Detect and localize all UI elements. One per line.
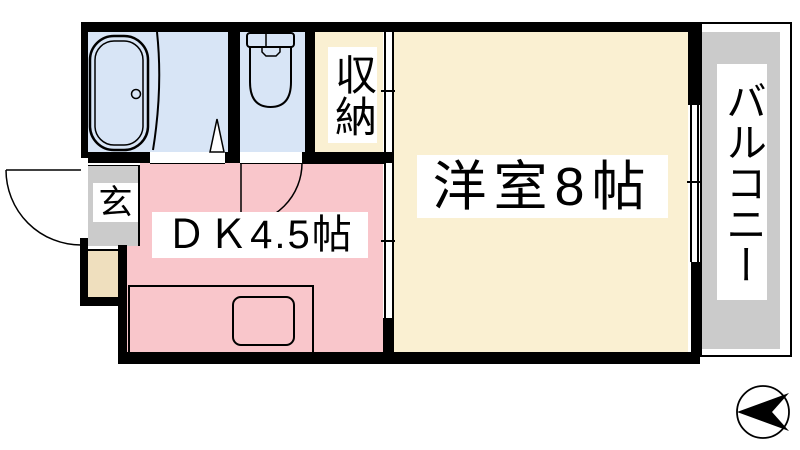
room-divider-tick (381, 240, 395, 242)
wall-between-doors (225, 152, 240, 163)
room-label-entrance: 玄 (93, 183, 138, 222)
wall-west-right-lower (691, 262, 700, 364)
wall-top (81, 22, 700, 32)
wall-under-bathroom (88, 152, 150, 163)
bathroom-door-threshold (150, 152, 225, 164)
toilet-room-floor (240, 32, 305, 152)
room-label-dk: ＤＫ4.5帖 (152, 212, 368, 258)
wall-left-lower (80, 238, 88, 306)
wall-under-closet (302, 152, 394, 164)
entrance-door-swing (6, 170, 81, 245)
wall-toilet-closet (305, 32, 315, 152)
room-label-western-room: 洋室8帖 (417, 155, 668, 218)
floor-plan: ＤＫ4.5帖 洋室8帖 収納 玄 バルコニー (0, 0, 800, 450)
wall-alcove-right (118, 245, 127, 352)
room-label-closet: 収納 (328, 47, 377, 143)
closet-door-tick (381, 90, 395, 92)
wall-bath-toilet (228, 32, 240, 152)
entrance-alcove (88, 249, 118, 299)
room-label-balcony: バルコニー (717, 64, 767, 300)
bathroom-floor (88, 32, 228, 152)
wall-bottom (118, 352, 700, 364)
closet-sliding-door (384, 32, 394, 152)
wall-left-upper (81, 22, 88, 158)
kitchen-sink (232, 296, 295, 346)
toilet-door-threshold (240, 152, 302, 164)
balcony-window-tick (687, 181, 701, 183)
wall-west-right-upper (688, 22, 700, 105)
balcony-window (690, 105, 699, 262)
wall-dk-west-lower (383, 318, 394, 352)
compass-north-icon (737, 386, 789, 438)
